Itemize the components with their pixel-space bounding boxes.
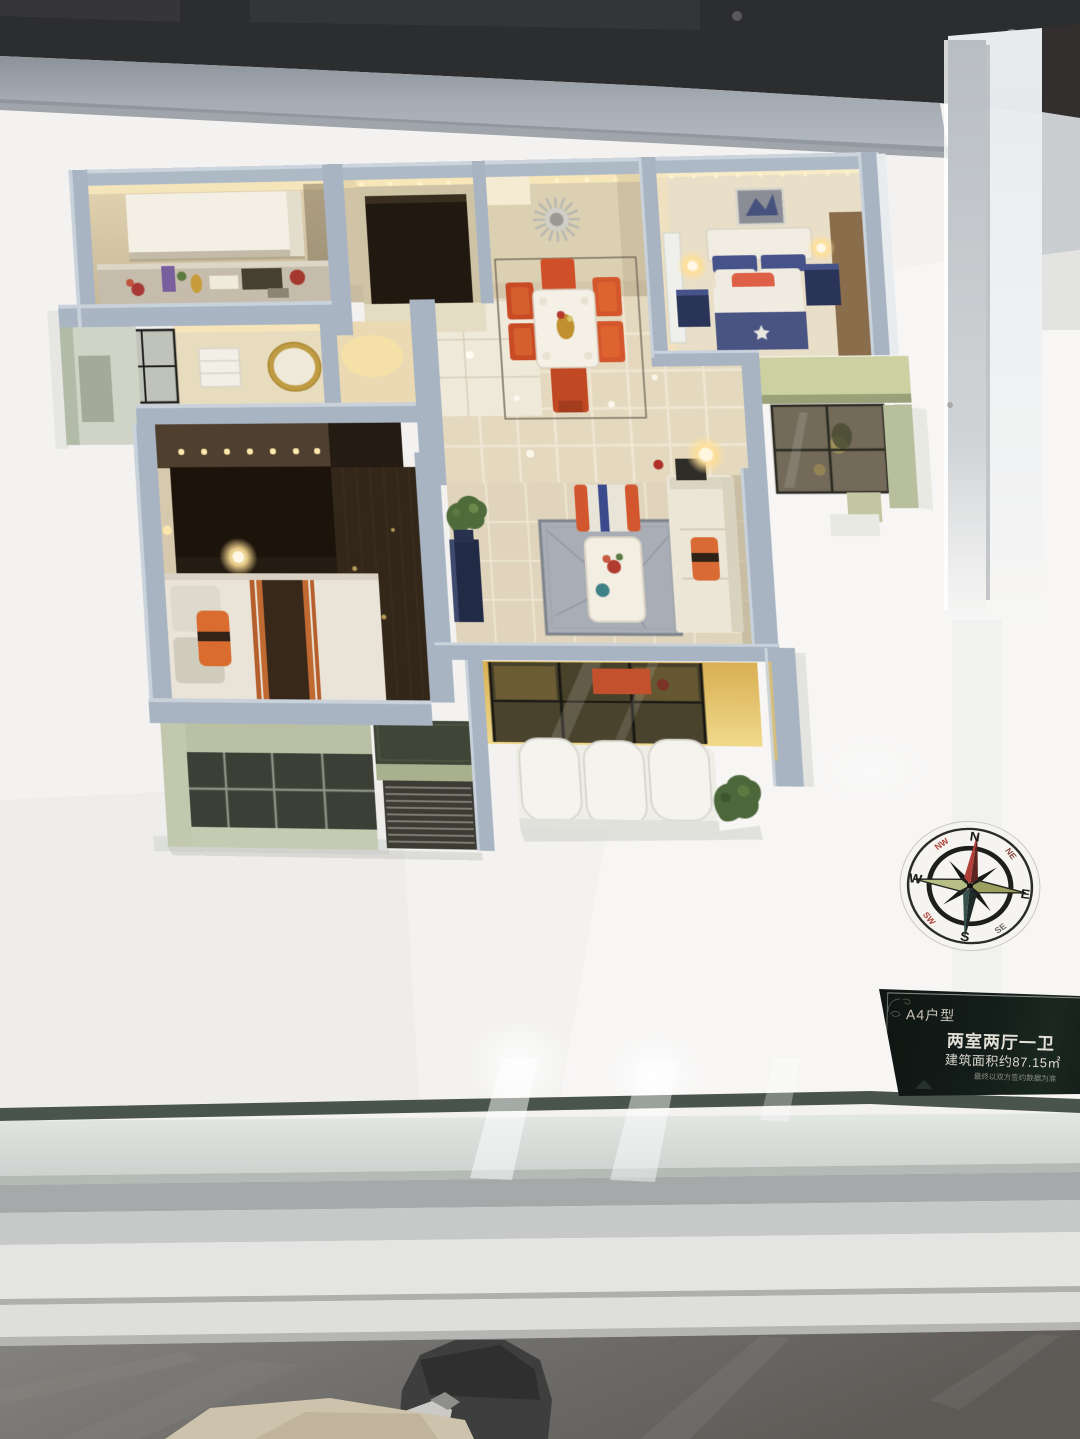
svg-text:W: W: [908, 871, 923, 887]
svg-text:N: N: [969, 829, 981, 845]
